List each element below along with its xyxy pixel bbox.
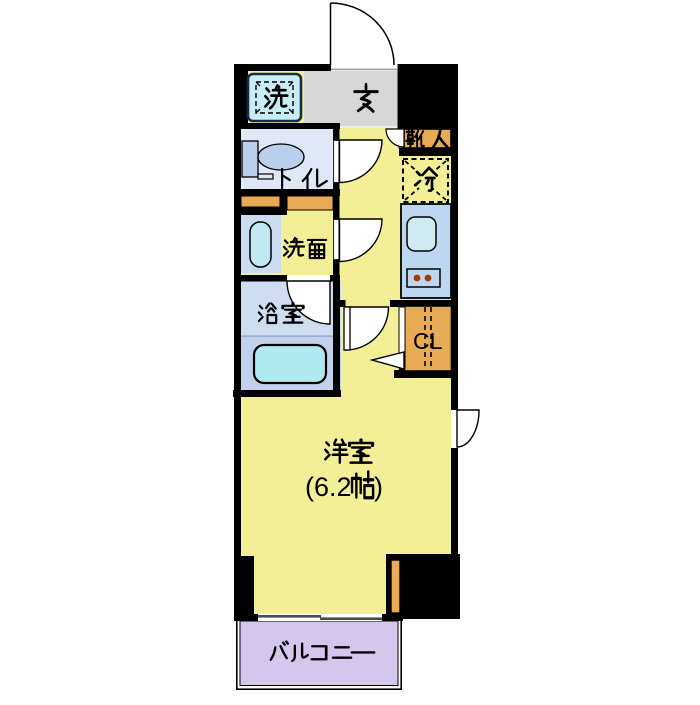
svg-text:): ) — [374, 472, 383, 502]
svg-text:(6.2: (6.2 — [305, 472, 352, 502]
svg-text:CL: CL — [413, 328, 443, 354]
